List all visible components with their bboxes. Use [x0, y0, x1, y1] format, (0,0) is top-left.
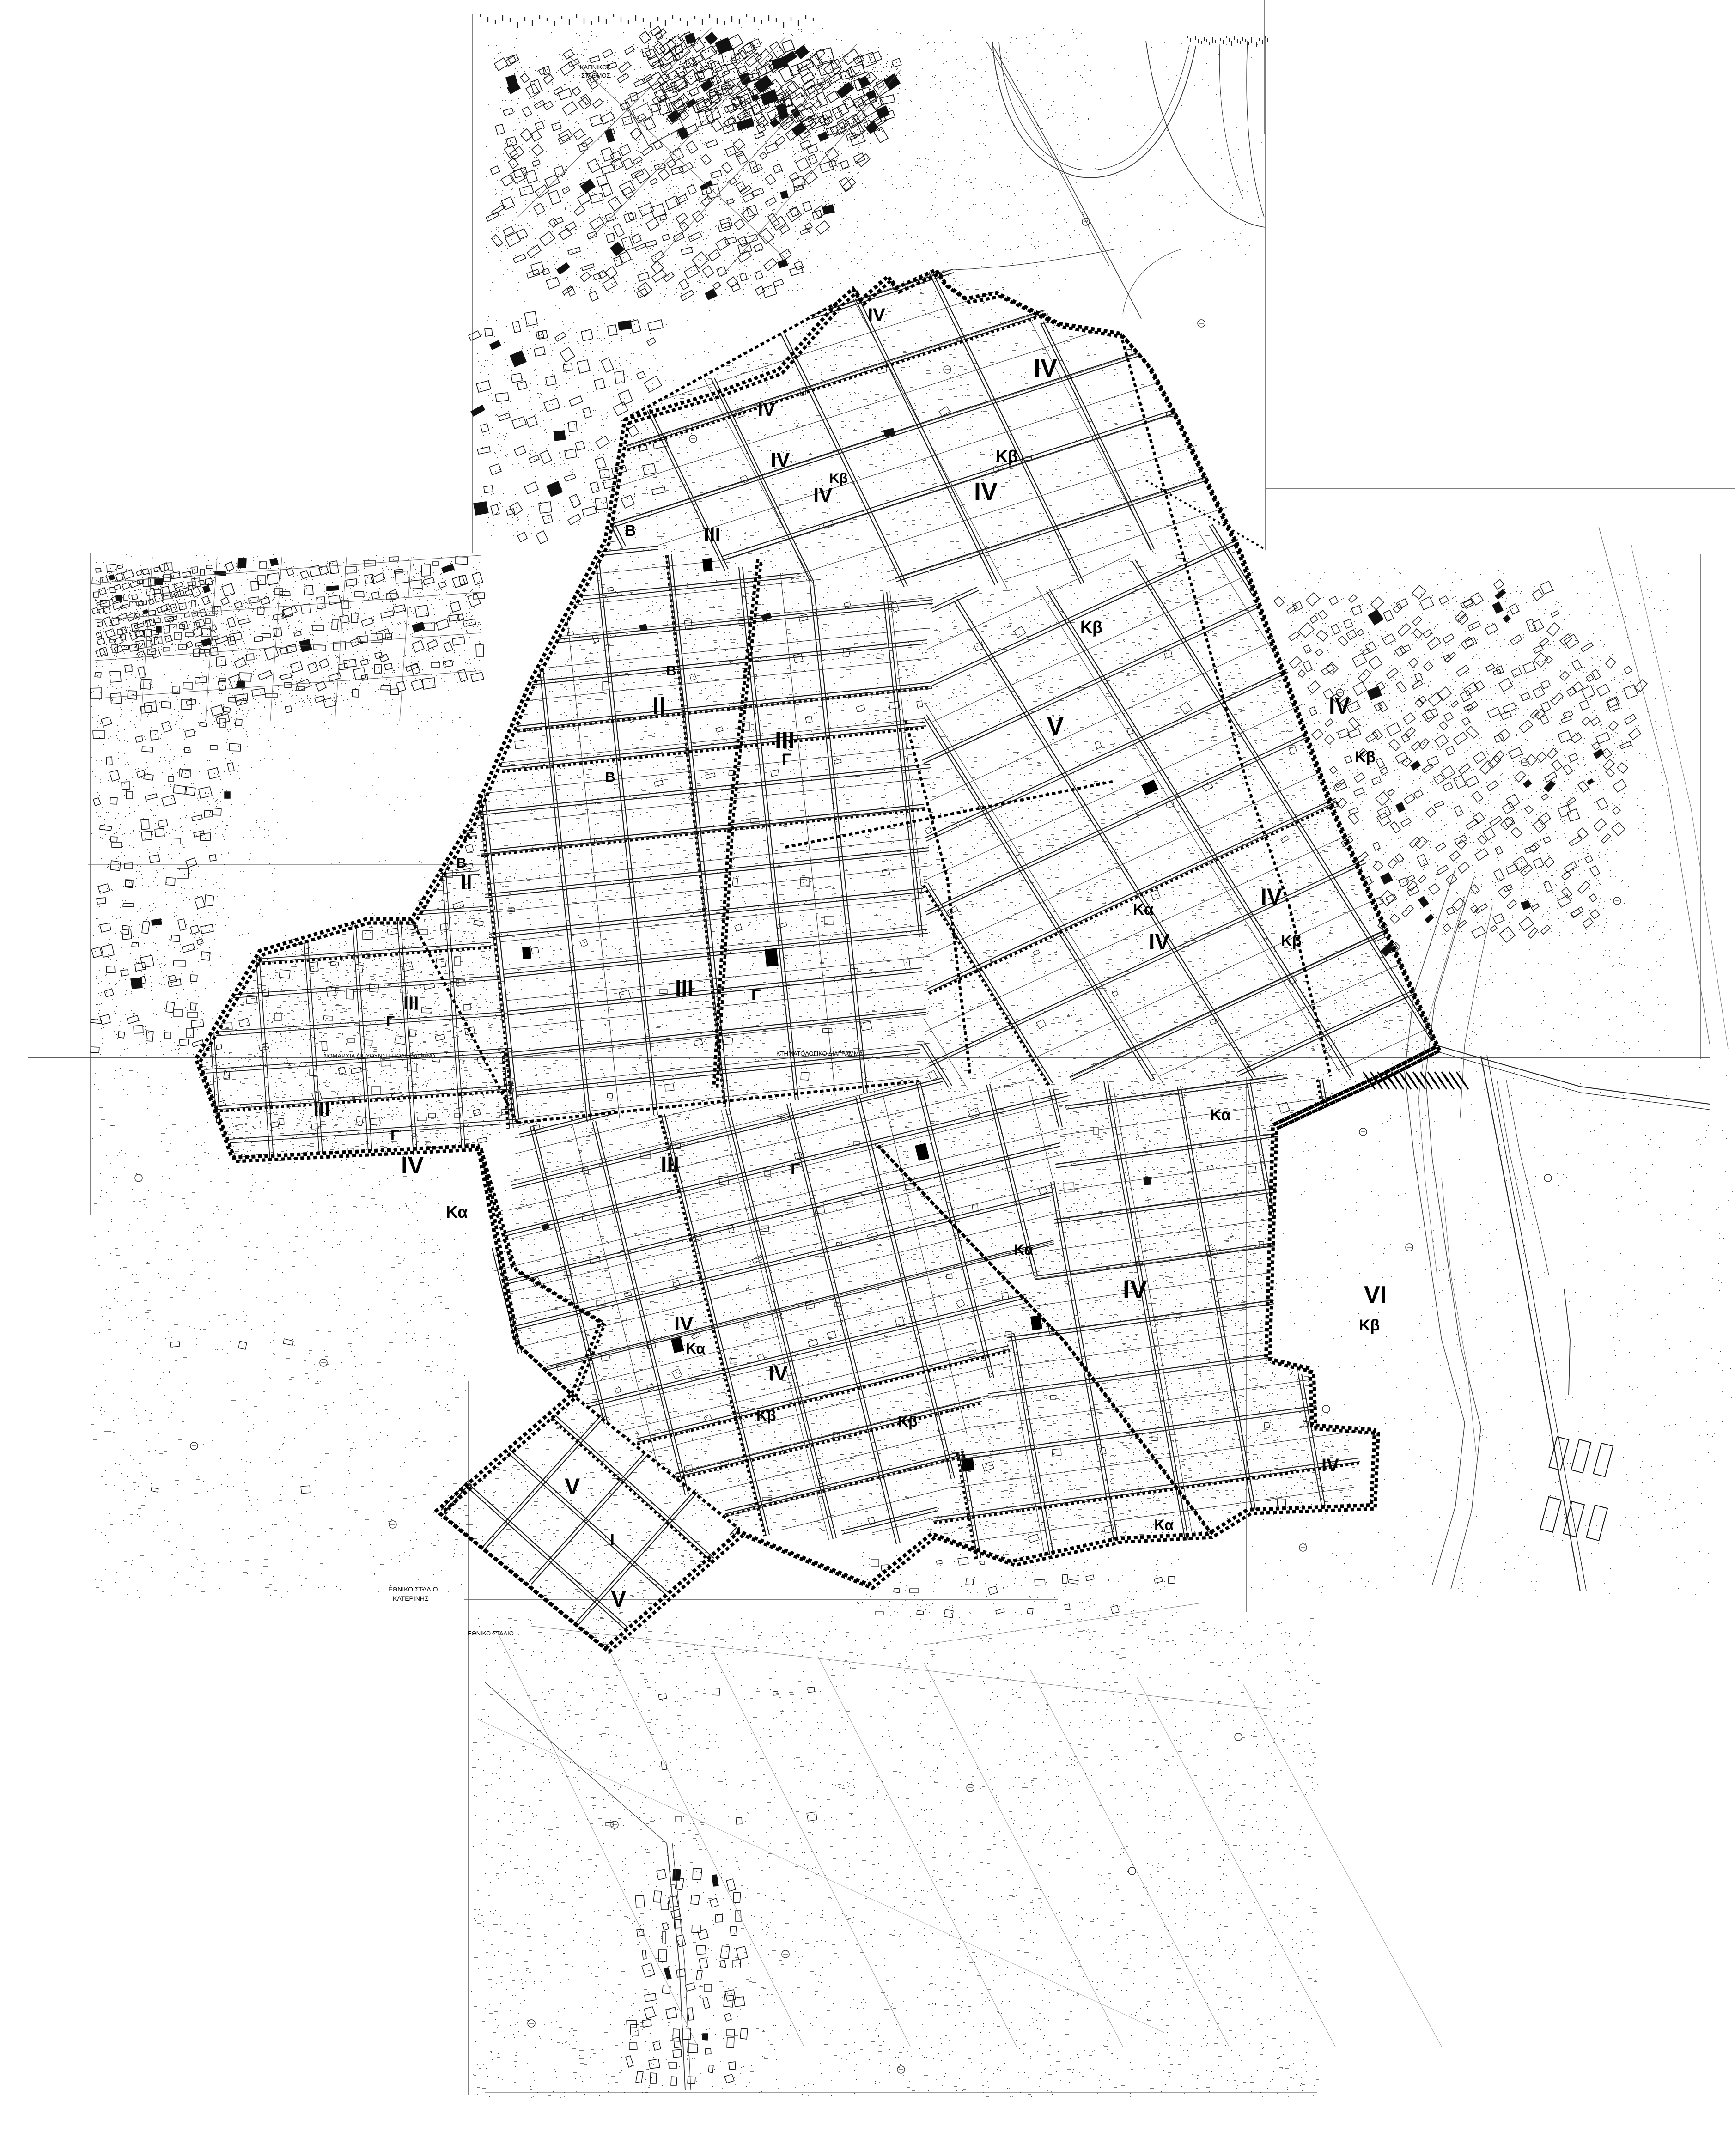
- svg-text:ΕΘΝΙΚΟ ΣΤΑΔΙΟ: ΕΘΝΙΚΟ ΣΤΑΔΙΟ: [468, 1630, 514, 1637]
- svg-text:IV: IV: [1329, 694, 1350, 719]
- svg-text:ΚΑΤΕΡΙΝΗΣ: ΚΑΤΕΡΙΝΗΣ: [393, 1595, 429, 1602]
- svg-text:I: I: [610, 1530, 615, 1549]
- svg-text:IV: IV: [768, 1362, 788, 1385]
- svg-text:Κβ: Κβ: [898, 1413, 918, 1430]
- svg-text:IV: IV: [674, 1312, 694, 1335]
- svg-text:Γ: Γ: [386, 1014, 395, 1029]
- svg-text:Κα: Κα: [446, 1203, 468, 1221]
- svg-text:Γ: Γ: [791, 1160, 800, 1178]
- svg-text:III: III: [661, 1153, 679, 1177]
- svg-text:III: III: [775, 727, 795, 754]
- svg-text:IV: IV: [1260, 884, 1283, 910]
- svg-text:V: V: [1047, 712, 1064, 740]
- svg-text:ΚΑΠΝΙΚΟΣ: ΚΑΠΝΙΚΟΣ: [580, 64, 610, 71]
- svg-text:ΝΟΜΑΡΧΙΑ ΔΙΕΥΘΥΝΣΗ ΠΟΛΕΟΔΟΜΙΑΣ: ΝΟΜΑΡΧΙΑ ΔΙΕΥΘΥΝΣΗ ΠΟΛΕΟΔΟΜΙΑΣ: [323, 1052, 437, 1059]
- svg-text:IV: IV: [1034, 354, 1057, 382]
- svg-text:III: III: [403, 993, 419, 1014]
- svg-text:Κα: Κα: [1154, 1517, 1174, 1533]
- svg-text:Β: Β: [625, 522, 636, 540]
- svg-text:Κα: Κα: [686, 1340, 705, 1357]
- svg-text:IV: IV: [771, 449, 790, 471]
- svg-text:III: III: [313, 1098, 330, 1120]
- svg-text:Β: Β: [457, 856, 467, 871]
- svg-text:IV: IV: [758, 400, 775, 420]
- svg-text:Κβ: Κβ: [1359, 1317, 1380, 1334]
- svg-text:IV: IV: [401, 1152, 424, 1179]
- svg-text:Κβ: Κβ: [996, 447, 1018, 466]
- svg-text:IV: IV: [974, 478, 998, 505]
- svg-text:V: V: [565, 1474, 580, 1500]
- svg-text:II: II: [652, 692, 666, 719]
- svg-text:II: II: [461, 871, 472, 893]
- svg-text:Κβ: Κβ: [756, 1407, 776, 1424]
- svg-text:Κα: Κα: [1014, 1241, 1033, 1258]
- svg-text:ΚΤΗΜΑΤΟΛΟΓΙΚΟ ΔΙΑΓΡΑΜΜΑ: ΚΤΗΜΑΤΟΛΟΓΙΚΟ ΔΙΑΓΡΑΜΜΑ: [776, 1050, 863, 1057]
- svg-text:Γ: Γ: [390, 1127, 399, 1143]
- svg-text:ΕΘΝΙΚΟ ΣΤΑΔΙΟ: ΕΘΝΙΚΟ ΣΤΑΔΙΟ: [388, 1585, 438, 1593]
- svg-text:IV: IV: [1123, 1275, 1147, 1304]
- svg-text:Κα: Κα: [1133, 901, 1154, 918]
- svg-text:Β: Β: [605, 770, 615, 785]
- svg-text:Κα: Κα: [1210, 1106, 1231, 1124]
- svg-text:III: III: [675, 976, 694, 1001]
- svg-text:ΣΤΑΘΜΟΣ: ΣΤΑΘΜΟΣ: [581, 72, 610, 79]
- svg-text:V: V: [611, 1586, 627, 1612]
- svg-text:IV: IV: [868, 305, 885, 325]
- svg-text:III: III: [704, 523, 721, 546]
- svg-text:Γ: Γ: [782, 751, 791, 768]
- svg-text:Γ: Γ: [751, 986, 761, 1004]
- svg-text:Β: Β: [666, 663, 676, 679]
- svg-text:VI: VI: [1364, 1281, 1387, 1308]
- svg-text:IV: IV: [1321, 1455, 1339, 1476]
- svg-text:Κβ: Κβ: [1355, 748, 1376, 766]
- svg-text:Κβ: Κβ: [1080, 618, 1102, 637]
- svg-text:IV: IV: [1149, 930, 1169, 954]
- svg-text:IV: IV: [813, 484, 833, 506]
- svg-text:Κβ: Κβ: [1281, 932, 1302, 950]
